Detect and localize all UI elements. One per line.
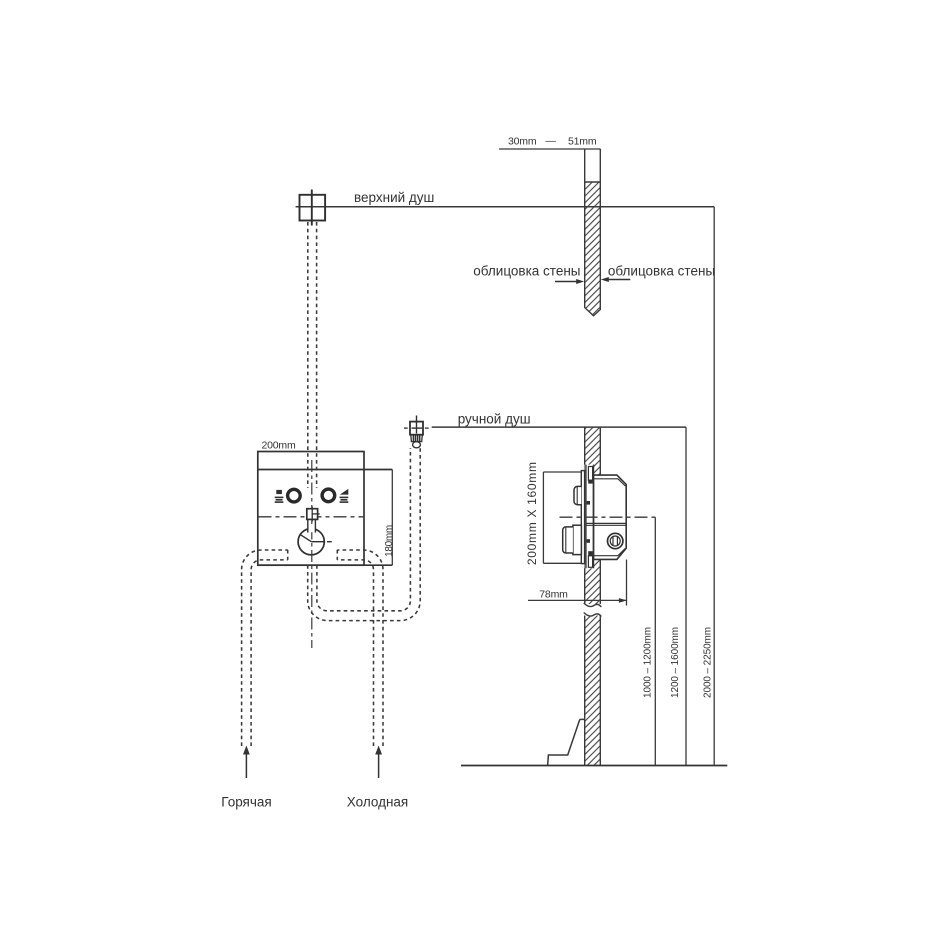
svg-text:2000 – 2250mm: 2000 – 2250mm [703,627,714,698]
svg-text:1200 – 1600mm: 1200 – 1600mm [670,627,681,698]
svg-text:180mm: 180mm [384,525,395,557]
svg-text:облицовка стены: облицовка стены [608,264,715,279]
svg-text:200mm X 160mm: 200mm X 160mm [525,461,539,565]
svg-text:—: — [545,135,556,147]
svg-text:200mm: 200mm [262,440,296,452]
svg-text:верхний душ: верхний душ [354,190,434,205]
svg-text:1000 – 1200mm: 1000 – 1200mm [643,627,654,698]
svg-text:78mm: 78mm [539,589,568,601]
svg-text:ручной душ: ручной душ [458,412,531,427]
svg-text:Горячая: Горячая [221,795,271,810]
svg-text:30mm: 30mm [508,136,537,148]
svg-text:51mm: 51mm [568,136,597,148]
svg-text:облицовка стены: облицовка стены [473,264,580,279]
svg-text:Холодная: Холодная [347,795,408,810]
